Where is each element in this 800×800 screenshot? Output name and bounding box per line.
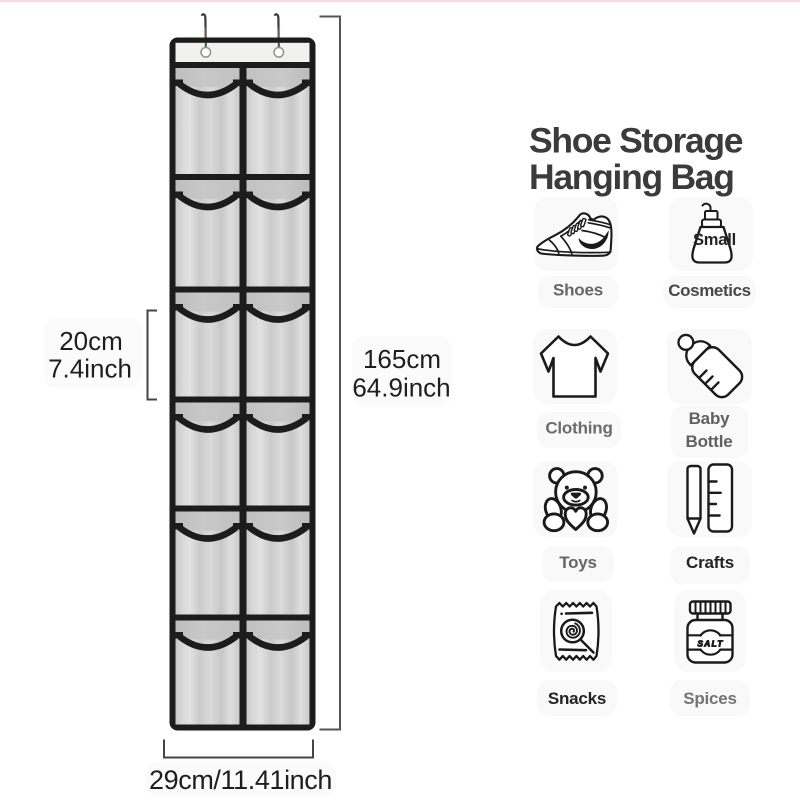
- svg-text:Cosmetics: Cosmetics: [668, 281, 750, 300]
- svg-text:Bottle: Bottle: [686, 432, 733, 451]
- svg-text:Shoes: Shoes: [553, 281, 603, 300]
- svg-text:165cm: 165cm: [363, 344, 441, 374]
- svg-text:Small: Small: [693, 231, 736, 249]
- svg-text:Snacks: Snacks: [548, 689, 606, 708]
- svg-text:7.4inch: 7.4inch: [48, 354, 132, 384]
- svg-text:Shoe Storage: Shoe Storage: [529, 121, 743, 161]
- svg-text:Toys: Toys: [559, 553, 597, 572]
- svg-text:64.9inch: 64.9inch: [352, 373, 450, 403]
- svg-text:SALT: SALT: [697, 638, 723, 648]
- svg-text:Crafts: Crafts: [686, 553, 734, 572]
- svg-text:Spices: Spices: [683, 689, 737, 708]
- svg-text:Clothing: Clothing: [545, 419, 612, 438]
- svg-text:Baby: Baby: [689, 409, 731, 428]
- svg-text:29cm/11.41inch: 29cm/11.41inch: [149, 765, 332, 795]
- svg-text:20cm: 20cm: [59, 326, 123, 356]
- svg-text:Hanging Bag: Hanging Bag: [529, 157, 734, 197]
